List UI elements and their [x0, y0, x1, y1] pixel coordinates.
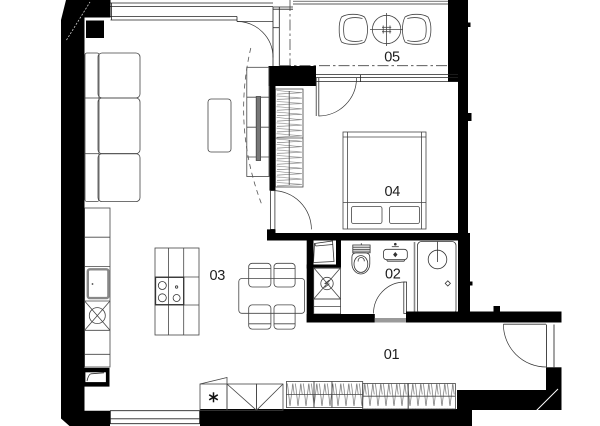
svg-text:01: 01 — [384, 347, 400, 363]
svg-text:03: 03 — [210, 268, 226, 284]
svg-text:04: 04 — [385, 184, 401, 200]
svg-text:02: 02 — [385, 267, 401, 283]
svg-text:05: 05 — [384, 50, 400, 66]
